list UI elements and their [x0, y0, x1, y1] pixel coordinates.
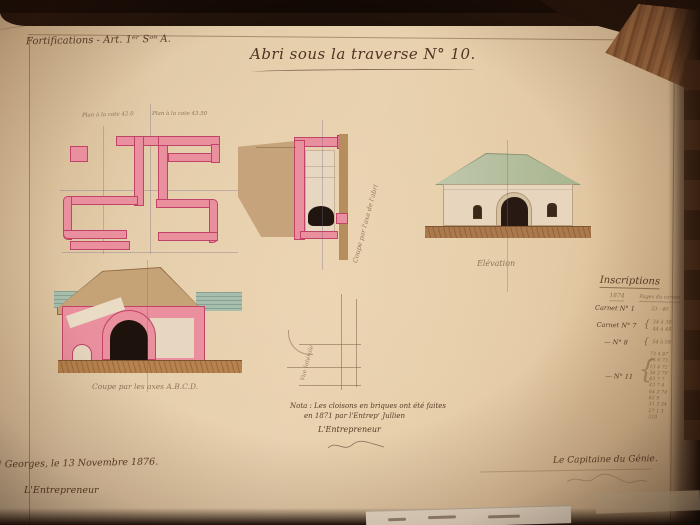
- cornice-line: [444, 189, 572, 190]
- partial-text-mark: [488, 515, 520, 519]
- section-opening: [308, 206, 334, 226]
- inscriptions-col-year: 1874: [609, 293, 624, 301]
- dimension-line: [507, 140, 508, 292]
- nota-line2: en 1871 par l'Entrepʳ Jullien: [304, 413, 405, 421]
- section-wall: [336, 213, 348, 224]
- dimension-line: [60, 190, 240, 191]
- plan-wall-segment: [158, 232, 218, 241]
- section-wall: [294, 140, 305, 240]
- underlying-page-corner: [596, 490, 700, 514]
- sketch-line: [356, 299, 357, 387]
- inscriptions-row-values: 33 · 40: [651, 307, 669, 313]
- brace: {: [643, 319, 650, 330]
- captain-signature: [565, 470, 649, 488]
- inscriptions-row-label: Carnet N° 1: [595, 305, 635, 313]
- photographed-drawing-page: Fortifications - Art. 1ᵉʳ Sᵒⁿ A. 19 Abri…: [0, 0, 700, 525]
- dimension-line: [62, 252, 238, 253]
- page-title: Abri sous la traverse N° 10.: [250, 46, 476, 63]
- inscriptions-numbers-column: 73 4 87 34 6 73 13 4 72 36 2 79 83 7 7 4…: [648, 352, 668, 422]
- sketch-line: [341, 294, 342, 390]
- photo-dark-bottom-edge: [0, 508, 700, 525]
- section-right-wall: [339, 134, 348, 260]
- partial-text-mark: [428, 515, 456, 519]
- dimension-line: [322, 120, 323, 270]
- plan-wall-segment: [70, 241, 130, 250]
- plan-wall-segment: [168, 153, 212, 162]
- plan-wall-segment: [158, 136, 168, 206]
- inscriptions-row-label: Carnet N° 7: [596, 322, 636, 330]
- window-left: [473, 205, 482, 219]
- entrepreneur-signature: [326, 438, 386, 452]
- section-line: [305, 166, 335, 167]
- door-opening: [501, 197, 528, 226]
- section-line: [305, 177, 335, 178]
- dimension-line: [150, 104, 151, 254]
- frame-line-left: [29, 37, 30, 525]
- book-page-edges: [684, 60, 700, 440]
- captain-signoff: Le Capitaine du Génie.: [553, 455, 658, 467]
- brace: {: [643, 338, 649, 348]
- plan-wall-segment: [211, 144, 220, 163]
- ground-band: [58, 360, 242, 373]
- partial-text-mark: [388, 518, 406, 522]
- window-right: [547, 203, 557, 217]
- plan-wall-segment: [66, 196, 138, 205]
- plan-label-right: Plan à la cote 43.50: [152, 111, 207, 117]
- elevation-caption: Élévation: [477, 260, 515, 269]
- inscriptions-row-label: — N° 11: [605, 373, 633, 381]
- numbers-line: 210: [648, 415, 666, 422]
- plan-wall-segment: [70, 146, 88, 162]
- ground-band: [425, 226, 591, 238]
- cross-section-caption: Coupe par les axes A.B.C.D.: [92, 383, 198, 391]
- entrepreneur-signoff: L'Entrepreneur: [24, 486, 99, 496]
- plan-wall-segment: [63, 230, 127, 239]
- plan-wall-segment: [156, 199, 216, 208]
- nota-line1: Nota : Les cloisons en briques ont été f…: [290, 403, 446, 411]
- inscriptions-row-label: — N° 8: [604, 339, 628, 347]
- section-line: [256, 147, 296, 148]
- section-interior: [150, 318, 194, 358]
- sketch-line: [299, 385, 361, 386]
- dimension-line: [147, 260, 148, 392]
- arch-opening: [110, 320, 148, 360]
- sketch-line: [287, 367, 361, 368]
- section-wall: [300, 231, 338, 239]
- inscriptions-title: Inscriptions: [600, 275, 661, 290]
- nota-signoff: L'Entrepreneur: [318, 426, 381, 435]
